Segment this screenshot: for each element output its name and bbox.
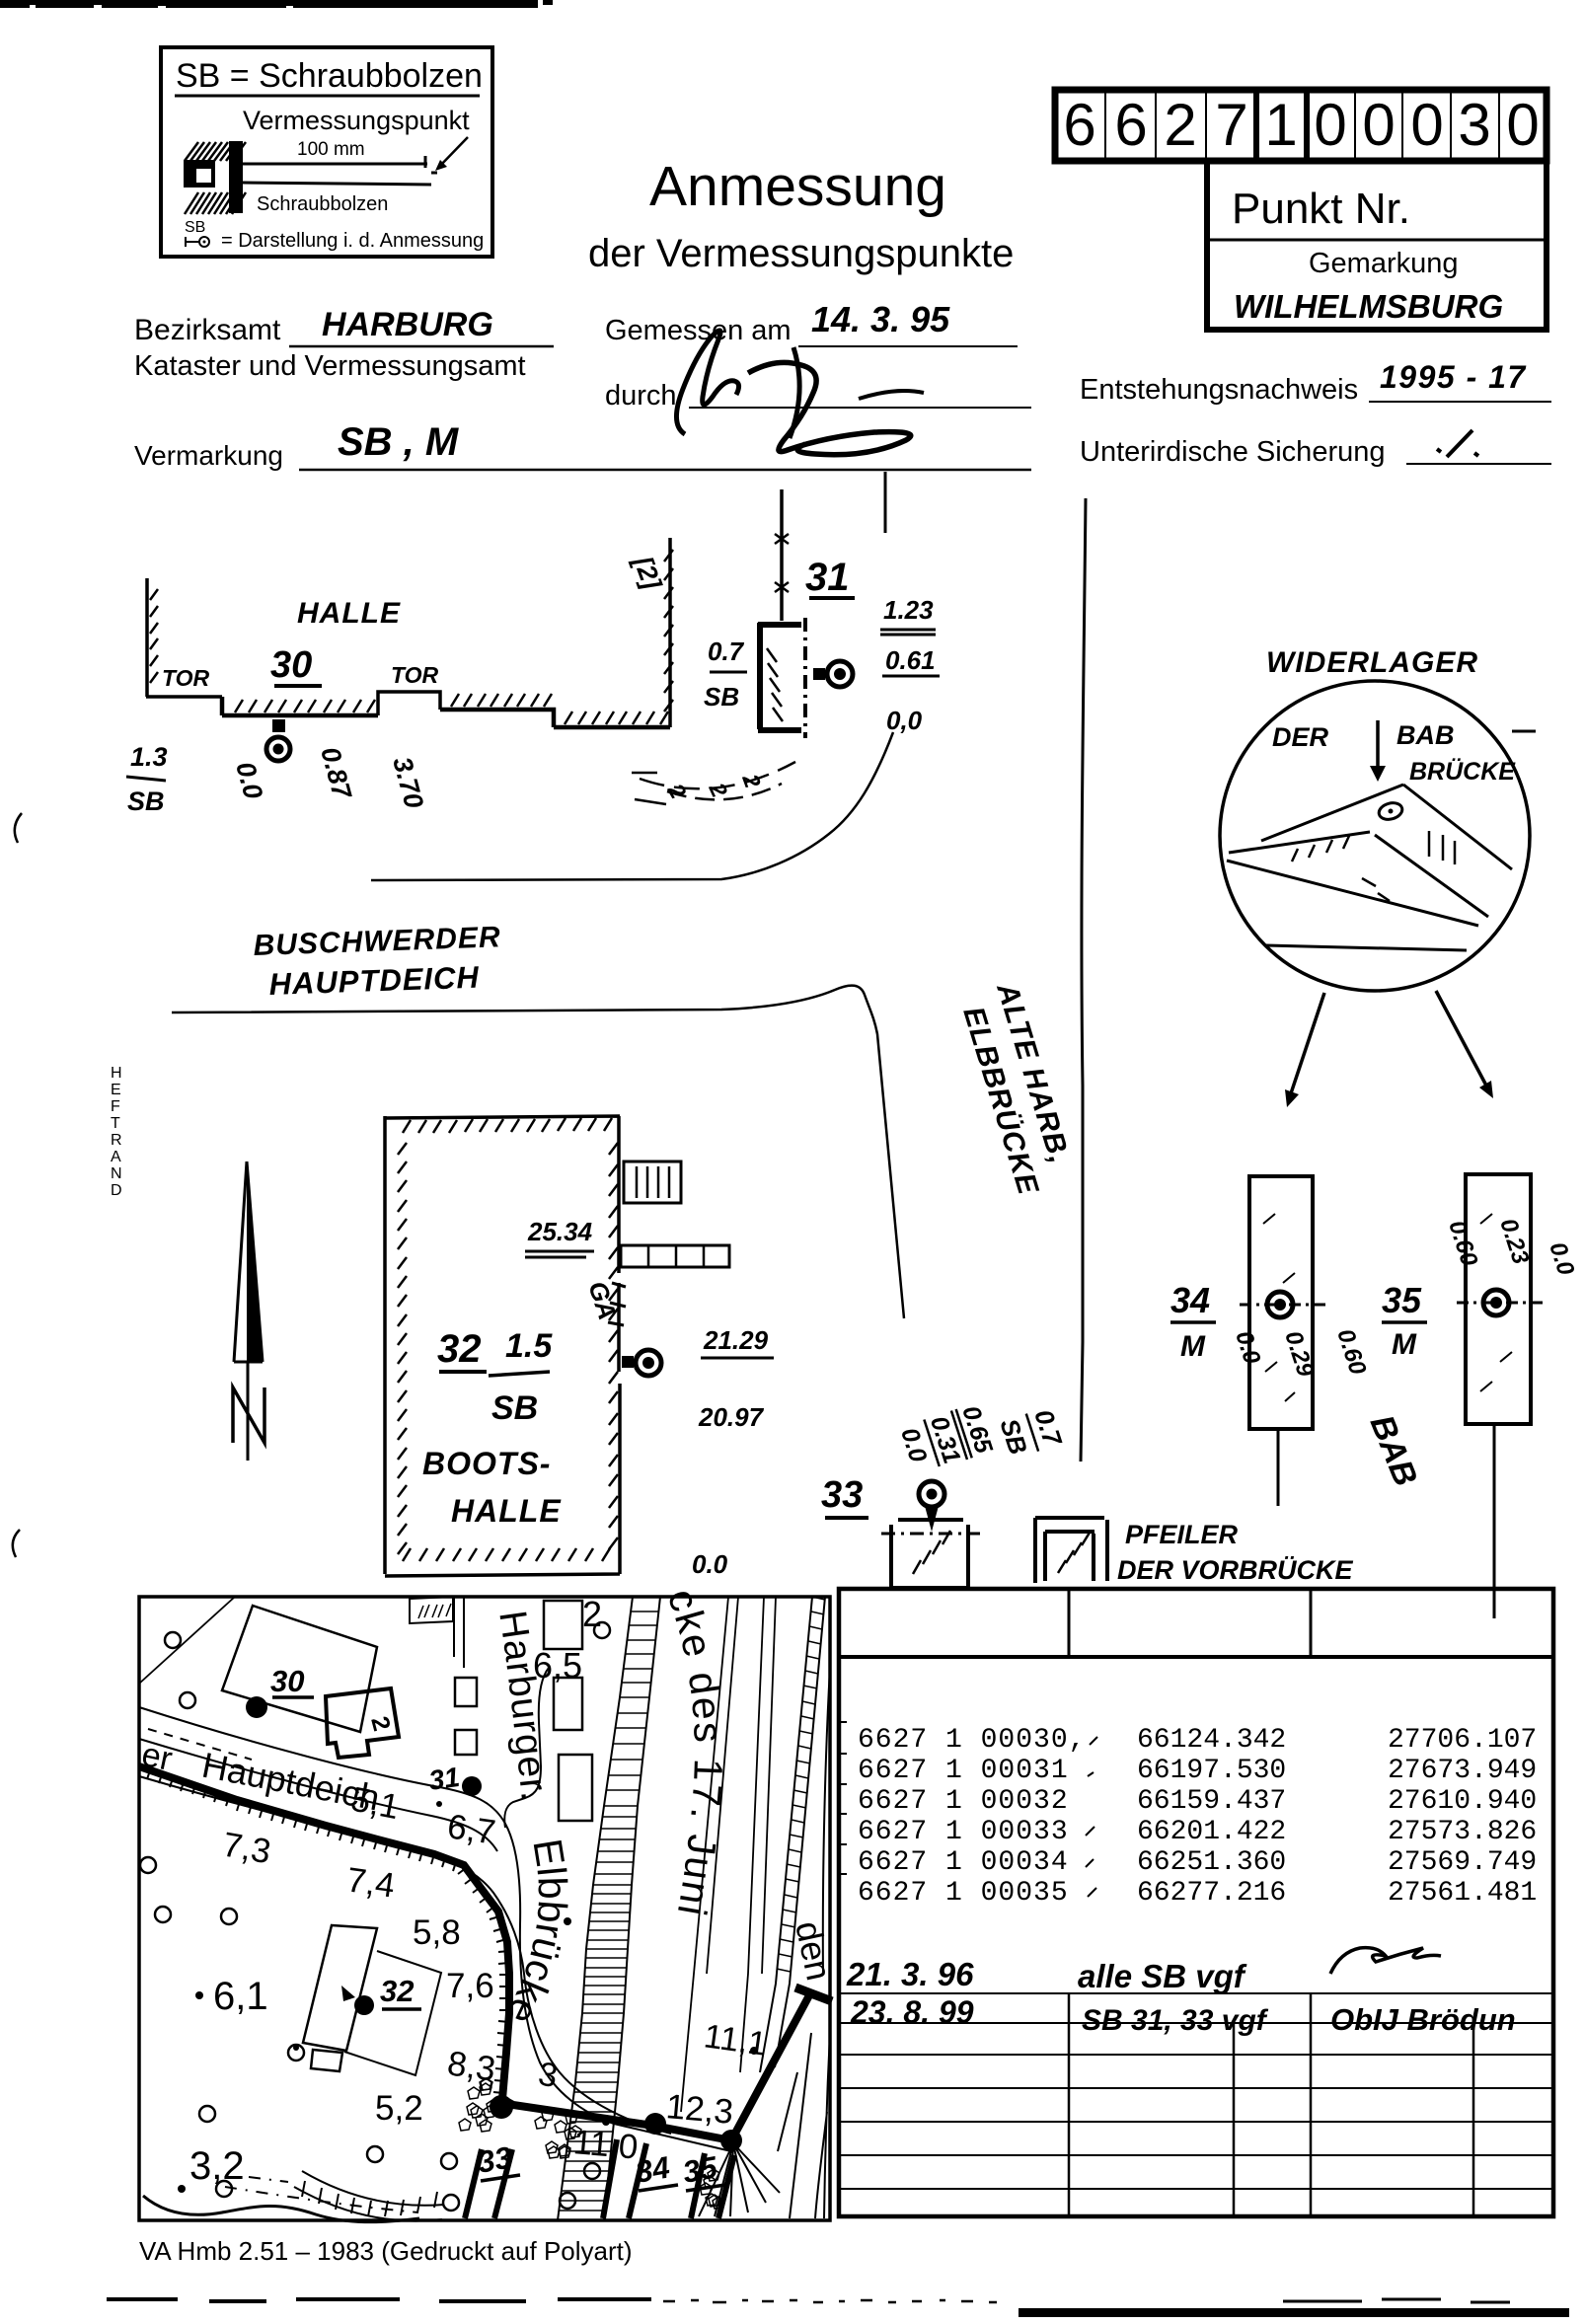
- svg-text:27673.949: 27673.949: [1388, 1756, 1537, 1786]
- svg-text:Kataster und Vermessungsamt: Kataster und Vermessungsamt: [134, 350, 526, 382]
- svg-text:Punkt Nr.: Punkt Nr.: [1232, 185, 1410, 233]
- svg-text:66251.360: 66251.360: [1137, 1847, 1286, 1878]
- svg-text:6627 1 00033: 6627 1 00033: [858, 1817, 1069, 1847]
- svg-text:27561.481: 27561.481: [1388, 1878, 1537, 1909]
- svg-text:1.23: 1.23: [883, 595, 934, 625]
- svg-text:DER: DER: [1272, 722, 1329, 752]
- svg-text:30: 30: [270, 644, 312, 686]
- svg-text:SB: SB: [127, 787, 165, 816]
- svg-text:27706.107: 27706.107: [1388, 1725, 1537, 1756]
- svg-text:6627 1 00031: 6627 1 00031: [858, 1756, 1069, 1786]
- svg-text:0: 0: [1362, 92, 1395, 158]
- svg-text:8,3: 8,3: [445, 2044, 498, 2088]
- svg-text:Bezirksamt: Bezirksamt: [134, 314, 281, 346]
- svg-text:5,8: 5,8: [413, 1913, 461, 1952]
- svg-text:6,1: 6,1: [213, 1975, 268, 2018]
- svg-text:1: 1: [1264, 92, 1297, 158]
- svg-text:12,3: 12,3: [664, 2087, 734, 2132]
- svg-text:2: 2: [1164, 92, 1196, 158]
- svg-text:SB: SB: [185, 219, 205, 236]
- svg-text:durch: durch: [605, 380, 677, 412]
- svg-text:SB , M: SB , M: [338, 420, 460, 464]
- svg-text:3: 3: [1458, 92, 1490, 158]
- svg-text:TOR: TOR: [162, 665, 210, 691]
- svg-text:6627 1 00030,: 6627 1 00030,: [858, 1725, 1086, 1756]
- svg-text:0,0: 0,0: [886, 706, 923, 735]
- svg-text:TOR: TOR: [391, 662, 439, 688]
- svg-text:Vermarkung: Vermarkung: [134, 440, 283, 471]
- svg-text:A: A: [111, 1149, 121, 1165]
- svg-text:100 mm: 100 mm: [297, 139, 365, 160]
- svg-text:F: F: [111, 1098, 120, 1115]
- svg-text:66159.437: 66159.437: [1137, 1786, 1286, 1817]
- svg-text:32: 32: [437, 1327, 482, 1371]
- svg-text:3,2: 3,2: [189, 2144, 245, 2188]
- svg-text:Gemarkung: Gemarkung: [1309, 248, 1459, 279]
- svg-text:alle SB vgf: alle SB vgf: [1078, 1958, 1247, 1994]
- svg-text:Schraubbolzen: Schraubbolzen: [257, 193, 388, 215]
- svg-text:66201.422: 66201.422: [1137, 1817, 1286, 1847]
- svg-text:HALLE: HALLE: [451, 1493, 562, 1529]
- svg-text:2: 2: [582, 1594, 602, 1634]
- svg-text:6627 1 00035: 6627 1 00035: [858, 1878, 1069, 1909]
- svg-text:6627 1 00034: 6627 1 00034: [858, 1847, 1069, 1878]
- svg-text:66197.530: 66197.530: [1137, 1756, 1286, 1786]
- svg-text:Entstehungsnachweis: Entstehungsnachweis: [1080, 374, 1358, 406]
- svg-text:BOOTS-: BOOTS-: [422, 1446, 551, 1481]
- svg-text:66277.216: 66277.216: [1137, 1878, 1286, 1909]
- svg-text:Anmessung: Anmessung: [649, 155, 946, 218]
- svg-text:HARBURG: HARBURG: [322, 306, 493, 343]
- svg-text:PFEILER: PFEILER: [1125, 1520, 1239, 1549]
- svg-text:0: 0: [1410, 92, 1443, 158]
- svg-text:SB 31, 33 vgf: SB 31, 33 vgf: [1082, 2004, 1269, 2037]
- svg-text:0: 0: [1506, 92, 1539, 158]
- svg-text:23. 8. 99: 23. 8. 99: [850, 1994, 974, 2030]
- svg-text:34: 34: [633, 2149, 672, 2189]
- svg-text:M: M: [1180, 1330, 1206, 1363]
- svg-text:Gemessen am: Gemessen am: [605, 315, 792, 346]
- svg-text:R: R: [111, 1132, 122, 1149]
- svg-text:WILHELMSBURG: WILHELMSBURG: [1234, 288, 1503, 325]
- svg-text:ObIJ Brödun: ObIJ Brödun: [1330, 2002, 1516, 2037]
- svg-text:14. 3. 95: 14. 3. 95: [811, 299, 950, 339]
- svg-text:E: E: [111, 1082, 121, 1098]
- svg-text:BAB: BAB: [1396, 720, 1455, 750]
- svg-text:1995 - 17: 1995 - 17: [1380, 359, 1527, 395]
- svg-text:34: 34: [1170, 1280, 1210, 1320]
- svg-text:M: M: [1392, 1328, 1417, 1361]
- svg-text:5,2: 5,2: [375, 2089, 423, 2128]
- svg-text:der Vermessungspunkte: der Vermessungspunkte: [588, 232, 1014, 275]
- svg-text:HALLE: HALLE: [297, 597, 401, 630]
- svg-text:31: 31: [805, 556, 850, 599]
- svg-text:27573.826: 27573.826: [1388, 1817, 1537, 1847]
- svg-text:66124.342: 66124.342: [1137, 1725, 1286, 1756]
- svg-text:N: N: [111, 1165, 122, 1182]
- svg-text:6627 1 00032: 6627 1 00032: [858, 1786, 1069, 1817]
- svg-text:1.3: 1.3: [130, 742, 168, 772]
- svg-text:T: T: [111, 1115, 120, 1132]
- svg-text:SB: SB: [491, 1389, 538, 1427]
- svg-text:21. 3. 96: 21. 3. 96: [846, 1956, 974, 1992]
- svg-text:H: H: [111, 1065, 122, 1082]
- svg-text:VA Hmb 2.51 – 1983 (Gedruckt a: VA Hmb 2.51 – 1983 (Gedruckt auf Polyart…: [139, 2236, 633, 2266]
- svg-text:Unterirdische Sicherung: Unterirdische Sicherung: [1080, 436, 1385, 468]
- svg-text:SB: SB: [704, 682, 739, 712]
- svg-text:1.5: 1.5: [505, 1327, 553, 1365]
- svg-text:HAUPTDEICH: HAUPTDEICH: [268, 960, 480, 1002]
- svg-text:7,4: 7,4: [344, 1860, 398, 1905]
- svg-text:7,3: 7,3: [220, 1825, 274, 1871]
- svg-text:6,7: 6,7: [445, 1807, 498, 1851]
- svg-text:35: 35: [1382, 1280, 1422, 1320]
- svg-text:27610.940: 27610.940: [1388, 1786, 1537, 1817]
- svg-text:0: 0: [1314, 92, 1346, 158]
- svg-text:30: 30: [270, 1664, 304, 1698]
- svg-text:6,5: 6,5: [533, 1645, 582, 1686]
- svg-text:21.29: 21.29: [703, 1325, 769, 1355]
- svg-text:D: D: [111, 1182, 122, 1199]
- svg-text:DER VORBRÜCKE: DER VORBRÜCKE: [1117, 1555, 1354, 1585]
- svg-text:6: 6: [1063, 92, 1095, 158]
- svg-text:7: 7: [1215, 92, 1247, 158]
- svg-text:6: 6: [1114, 92, 1147, 158]
- svg-text:33: 33: [475, 2139, 514, 2179]
- svg-text:0.61: 0.61: [885, 645, 936, 675]
- svg-text:SB = Schraubbolzen: SB = Schraubbolzen: [176, 57, 483, 95]
- svg-text:27569.749: 27569.749: [1388, 1847, 1537, 1878]
- svg-text:= Darstellung i. d. Anmessung: = Darstellung i. d. Anmessung: [221, 230, 484, 252]
- svg-text:25.34: 25.34: [527, 1217, 593, 1246]
- svg-text:20.97: 20.97: [698, 1402, 765, 1432]
- svg-text:0.0: 0.0: [692, 1549, 728, 1579]
- svg-text:Vermessungspunkt: Vermessungspunkt: [243, 106, 470, 135]
- svg-text:32: 32: [380, 1974, 414, 2008]
- svg-text:BRÜCKE: BRÜCKE: [1409, 757, 1516, 786]
- svg-text:0.7: 0.7: [708, 637, 745, 666]
- svg-text:7,6: 7,6: [446, 1967, 494, 2005]
- svg-text:33: 33: [821, 1474, 863, 1516]
- svg-text:WIDERLAGER: WIDERLAGER: [1266, 646, 1478, 679]
